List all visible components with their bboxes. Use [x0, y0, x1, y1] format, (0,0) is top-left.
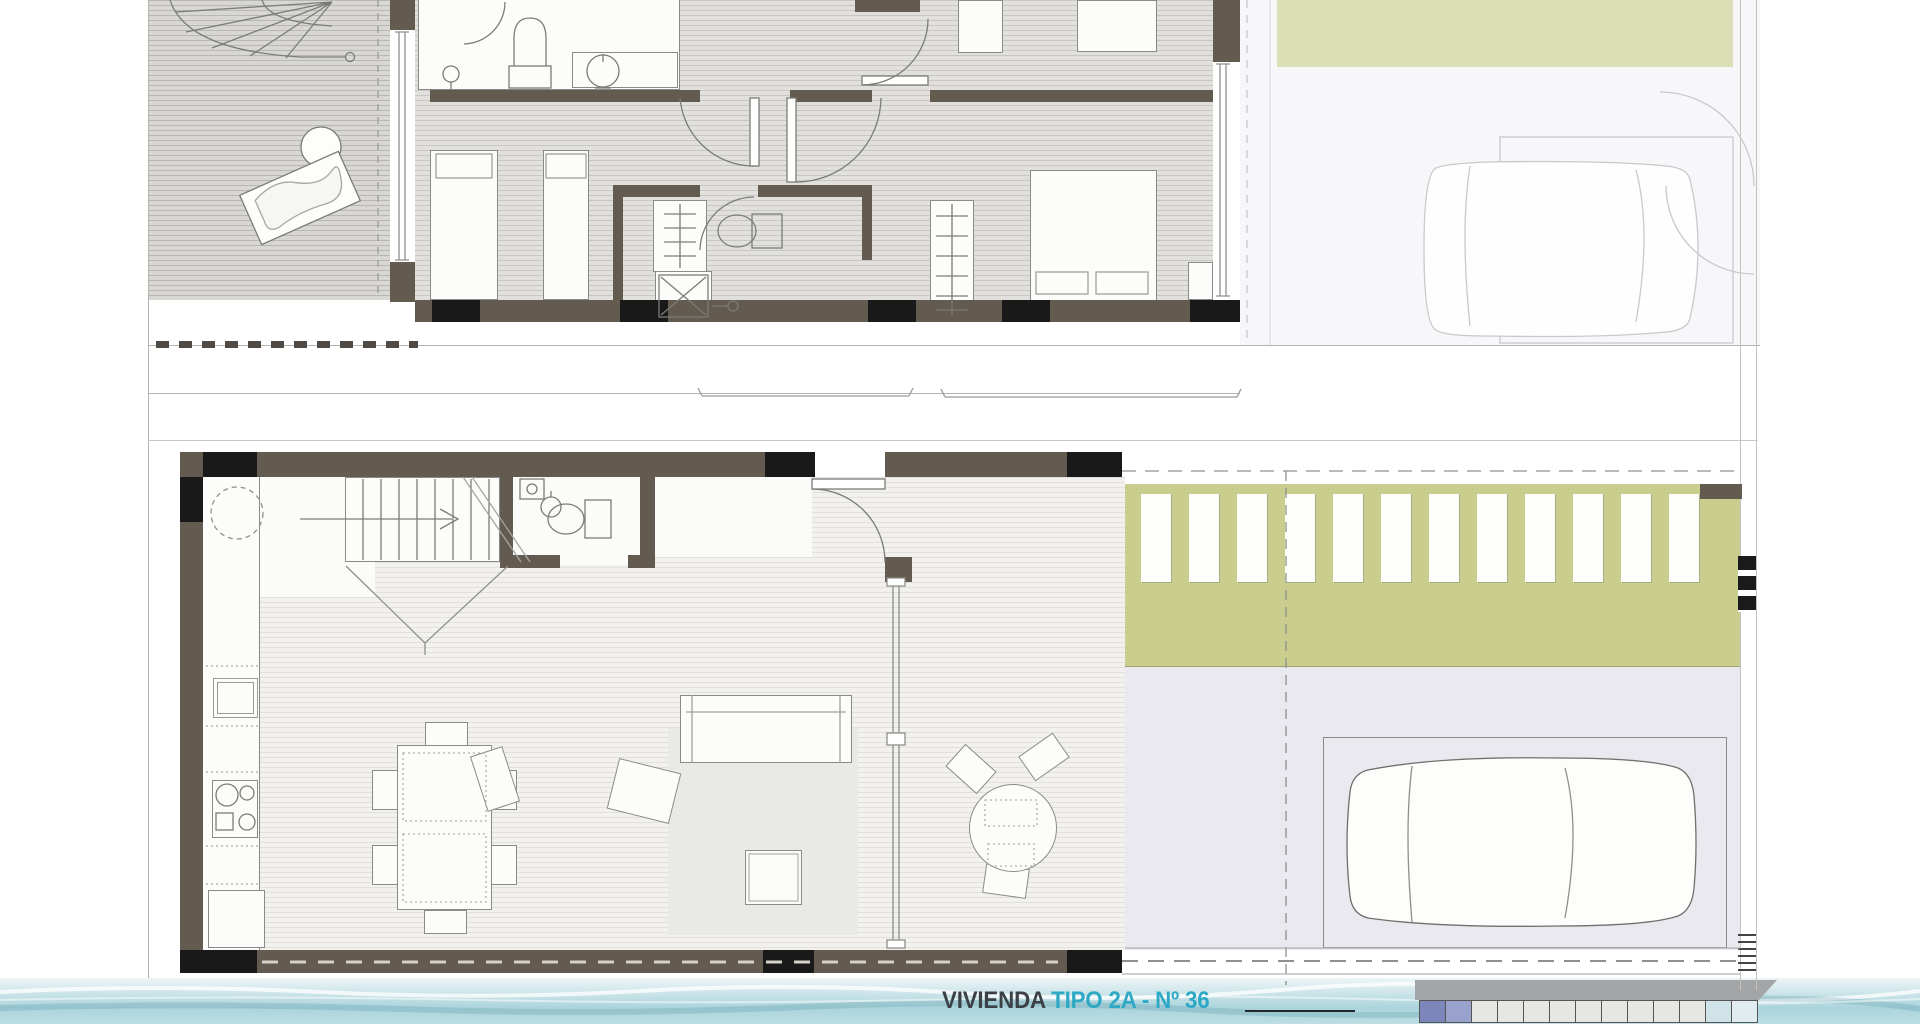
- pier: [432, 300, 480, 322]
- pergola-slat: [1189, 494, 1219, 582]
- wc-white: [513, 477, 640, 565]
- lot-line-right: [1756, 0, 1757, 990]
- pergola-slat: [1237, 494, 1267, 582]
- wall: [930, 90, 1213, 102]
- wall: [613, 185, 700, 197]
- terrace-boundary-dashes: [156, 341, 418, 348]
- bed-single-2: [543, 150, 589, 300]
- closet-1: [653, 200, 707, 272]
- nightstand: [1188, 262, 1213, 300]
- pergola-slat: [1525, 494, 1555, 582]
- neighbor-garden-band: [1277, 0, 1733, 67]
- thin-line-above-ground: [148, 440, 1758, 441]
- pergola-slat: [1573, 494, 1603, 582]
- wall: [790, 90, 872, 102]
- wall-right-upper: [1213, 0, 1240, 62]
- pergola-slat: [1141, 494, 1171, 582]
- chair: [424, 910, 467, 934]
- pergola-slat: [1381, 494, 1411, 582]
- pier: [868, 300, 916, 322]
- wardrobe-wall: [855, 0, 920, 12]
- pier: [1002, 300, 1050, 322]
- parking-space: [1323, 737, 1727, 948]
- pier: [1067, 950, 1122, 973]
- bed-single-1: [430, 150, 498, 300]
- lot-line-left: [148, 0, 149, 978]
- wall-bottom-ground: [180, 950, 1122, 973]
- entry-white: [655, 477, 812, 557]
- terrace-floor-upper: [148, 0, 390, 300]
- pier: [765, 452, 815, 477]
- wall: [758, 185, 872, 197]
- pier: [1190, 300, 1240, 322]
- sink-counter-upper: [572, 52, 678, 88]
- chair: [425, 722, 468, 746]
- pergola-slat: [1429, 494, 1459, 582]
- pier: [1067, 452, 1122, 477]
- chair: [372, 770, 398, 810]
- pergola-slat: [1285, 494, 1315, 582]
- chair: [372, 845, 398, 885]
- wall: [390, 0, 415, 30]
- pergola-slat: [1621, 494, 1651, 582]
- wall-top-ground: [180, 452, 810, 477]
- wall: [430, 90, 700, 102]
- wall-left-ground: [180, 452, 203, 973]
- lot-line: [148, 393, 1240, 394]
- wall-bottom-upper: [415, 300, 1240, 322]
- pier: [180, 950, 257, 973]
- wc-wall: [500, 555, 560, 568]
- sofa: [680, 695, 852, 763]
- entry-pier: [885, 557, 912, 582]
- chair: [491, 845, 517, 885]
- wall: [390, 262, 415, 302]
- bed-small-top: [958, 0, 1003, 53]
- fridge: [208, 890, 265, 948]
- cooktop: [212, 780, 258, 838]
- pergola-slat: [1333, 494, 1363, 582]
- coffee-table: [745, 850, 802, 905]
- bed-double: [1030, 170, 1157, 301]
- wall: [862, 185, 872, 260]
- garden-corner-wall: [1700, 484, 1742, 499]
- floor-plan-sheet: VIVIENDA TIPO 2A - Nº 36: [0, 0, 1920, 1024]
- pergola-slat: [1477, 494, 1507, 582]
- terrace-table: [969, 784, 1057, 872]
- stairs: [345, 477, 500, 562]
- pier: [620, 300, 668, 322]
- desk-upper: [1077, 0, 1157, 52]
- oven: [213, 678, 258, 718]
- boundary-hatch: [1738, 934, 1756, 974]
- pier: [180, 477, 203, 522]
- pier: [763, 950, 814, 973]
- pergola-slat: [1669, 494, 1699, 582]
- boundary-gate-post: [1738, 556, 1756, 612]
- plan-geometry: [0, 0, 1920, 1024]
- wc-wall: [628, 555, 655, 568]
